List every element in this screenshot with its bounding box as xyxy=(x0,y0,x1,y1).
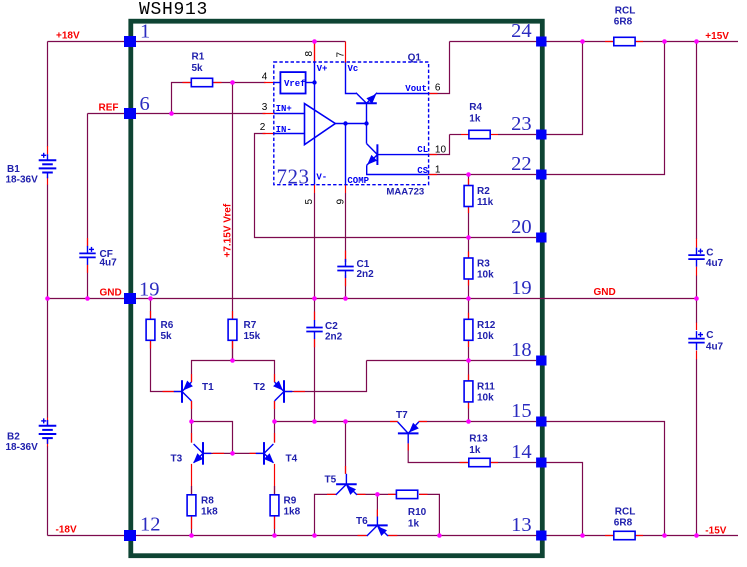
svg-text:18-36V: 18-36V xyxy=(6,442,39,453)
svg-text:+18V: +18V xyxy=(56,31,80,42)
svg-text:19: 19 xyxy=(139,278,160,300)
svg-text:7: 7 xyxy=(336,52,347,58)
svg-text:R6: R6 xyxy=(161,320,174,331)
svg-text:4: 4 xyxy=(262,71,268,82)
svg-text:15k: 15k xyxy=(244,331,261,342)
svg-text:R10: R10 xyxy=(408,507,427,518)
svg-text:Vref: Vref xyxy=(284,79,306,89)
svg-text:C: C xyxy=(706,248,713,259)
svg-text:8: 8 xyxy=(304,51,315,57)
svg-text:T5: T5 xyxy=(325,475,337,486)
svg-text:22: 22 xyxy=(511,153,532,175)
svg-text:18: 18 xyxy=(511,339,532,361)
svg-text:R4: R4 xyxy=(469,102,482,113)
svg-text:14: 14 xyxy=(511,441,532,463)
svg-text:RCL: RCL xyxy=(615,507,636,518)
svg-text:10k: 10k xyxy=(477,393,494,404)
svg-text:IN+: IN+ xyxy=(276,104,292,114)
svg-text:R8: R8 xyxy=(201,496,214,507)
svg-text:6: 6 xyxy=(140,93,150,115)
svg-text:24: 24 xyxy=(511,20,532,42)
svg-text:MAA723: MAA723 xyxy=(386,187,424,198)
svg-text:1k: 1k xyxy=(469,445,481,456)
svg-text:15: 15 xyxy=(511,400,532,422)
svg-text:1k: 1k xyxy=(469,114,481,125)
svg-text:REF: REF xyxy=(99,103,119,114)
svg-text:5: 5 xyxy=(304,199,315,205)
svg-text:-15V: -15V xyxy=(705,525,726,536)
svg-text:V+: V+ xyxy=(317,64,328,74)
svg-text:V-: V- xyxy=(316,173,327,183)
svg-text:3: 3 xyxy=(262,102,268,113)
svg-text:T4: T4 xyxy=(286,454,298,465)
svg-text:18-36V: 18-36V xyxy=(6,175,39,186)
svg-text:B2: B2 xyxy=(7,432,20,443)
svg-text:T3: T3 xyxy=(171,454,183,465)
svg-text:R2: R2 xyxy=(477,186,490,197)
svg-text:1k8: 1k8 xyxy=(284,507,301,518)
svg-text:12: 12 xyxy=(140,514,161,536)
svg-text:10k: 10k xyxy=(477,270,494,281)
svg-text:IN-: IN- xyxy=(276,125,292,135)
svg-text:+7.15V Vref: +7.15V Vref xyxy=(223,203,234,257)
svg-text:+15V: +15V xyxy=(705,31,729,42)
svg-text:Vc: Vc xyxy=(348,64,359,74)
svg-text:T7: T7 xyxy=(396,410,408,421)
svg-text:20: 20 xyxy=(511,216,532,238)
svg-text:C: C xyxy=(706,330,713,341)
svg-text:6: 6 xyxy=(435,83,441,94)
svg-text:GND: GND xyxy=(594,287,616,298)
svg-text:R11: R11 xyxy=(477,382,495,393)
svg-text:T2: T2 xyxy=(254,382,266,393)
svg-text:1k: 1k xyxy=(408,519,420,530)
svg-text:5k: 5k xyxy=(192,63,204,74)
svg-text:2n2: 2n2 xyxy=(357,269,375,280)
svg-text:19: 19 xyxy=(511,277,532,299)
svg-text:CS: CS xyxy=(417,166,428,176)
svg-text:T1: T1 xyxy=(202,382,214,393)
svg-text:6R8: 6R8 xyxy=(614,518,633,529)
svg-text:RCL: RCL xyxy=(615,6,636,17)
svg-text:Q1: Q1 xyxy=(408,52,422,63)
svg-text:4u7: 4u7 xyxy=(100,258,118,269)
svg-text:-18V: -18V xyxy=(56,525,77,536)
svg-text:R7: R7 xyxy=(244,320,257,331)
svg-text:4u7: 4u7 xyxy=(706,258,724,269)
svg-text:723: 723 xyxy=(277,164,310,188)
svg-text:B1: B1 xyxy=(7,164,20,175)
svg-text:1: 1 xyxy=(435,165,441,176)
svg-text:Vout: Vout xyxy=(405,84,427,94)
svg-text:13: 13 xyxy=(511,514,532,536)
svg-text:2: 2 xyxy=(260,122,266,133)
svg-text:6R8: 6R8 xyxy=(614,17,633,28)
svg-text:2n2: 2n2 xyxy=(325,332,343,343)
svg-text:R13: R13 xyxy=(469,434,488,445)
svg-text:GND: GND xyxy=(100,288,122,299)
svg-text:WSH913: WSH913 xyxy=(139,0,208,20)
svg-text:11k: 11k xyxy=(477,197,494,208)
svg-text:CL: CL xyxy=(417,145,428,155)
svg-text:1k8: 1k8 xyxy=(201,507,218,518)
svg-text:COMP: COMP xyxy=(347,176,369,186)
svg-text:1: 1 xyxy=(140,21,150,43)
svg-text:R1: R1 xyxy=(192,52,205,63)
svg-text:R3: R3 xyxy=(477,259,490,270)
svg-text:10: 10 xyxy=(435,145,447,156)
svg-text:T6: T6 xyxy=(356,516,368,527)
svg-text:9: 9 xyxy=(336,199,347,205)
svg-text:4u7: 4u7 xyxy=(706,342,724,353)
svg-text:5k: 5k xyxy=(161,331,173,342)
svg-text:23: 23 xyxy=(511,113,532,135)
svg-text:C2: C2 xyxy=(325,321,338,332)
svg-text:10k: 10k xyxy=(477,331,494,342)
svg-text:R12: R12 xyxy=(477,320,496,331)
svg-text:R9: R9 xyxy=(284,496,297,507)
